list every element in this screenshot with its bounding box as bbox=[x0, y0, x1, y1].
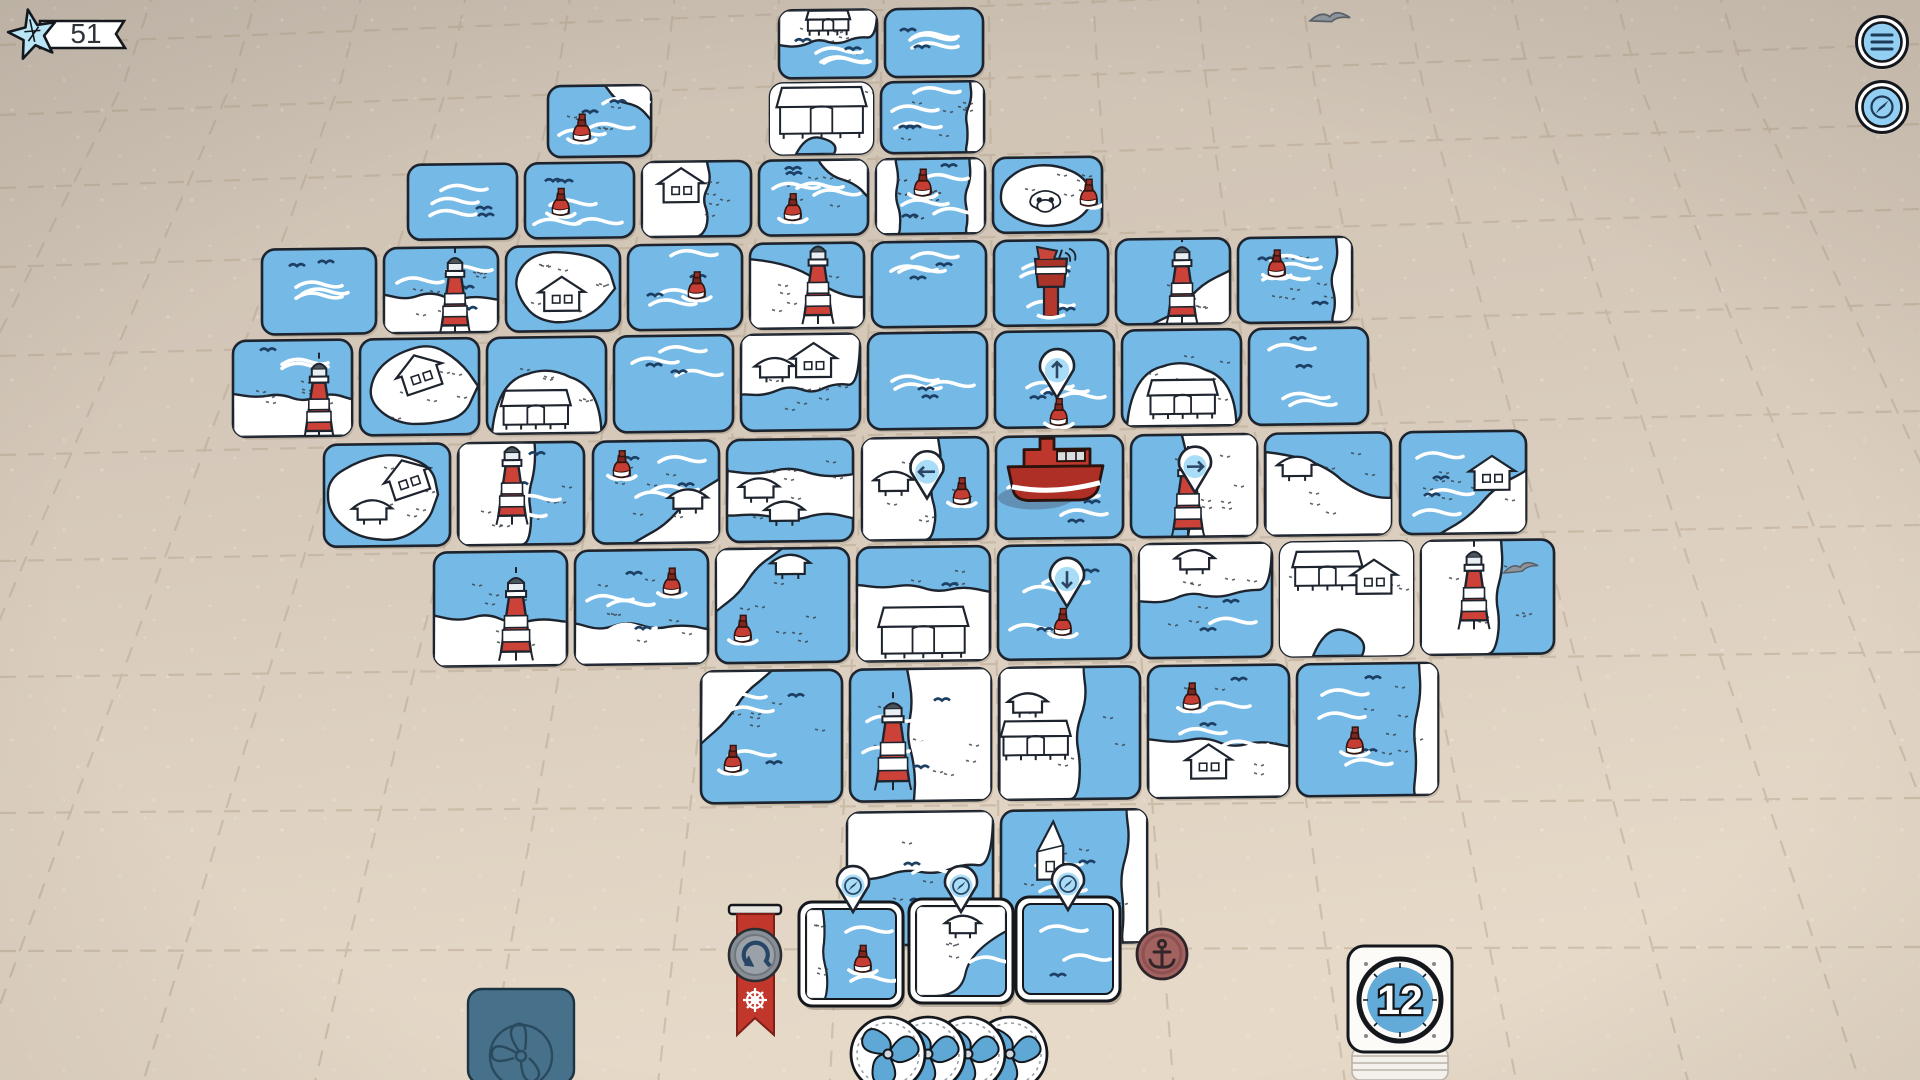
svg-text:51: 51 bbox=[70, 18, 101, 49]
svg-text:12: 12 bbox=[1377, 977, 1423, 1023]
